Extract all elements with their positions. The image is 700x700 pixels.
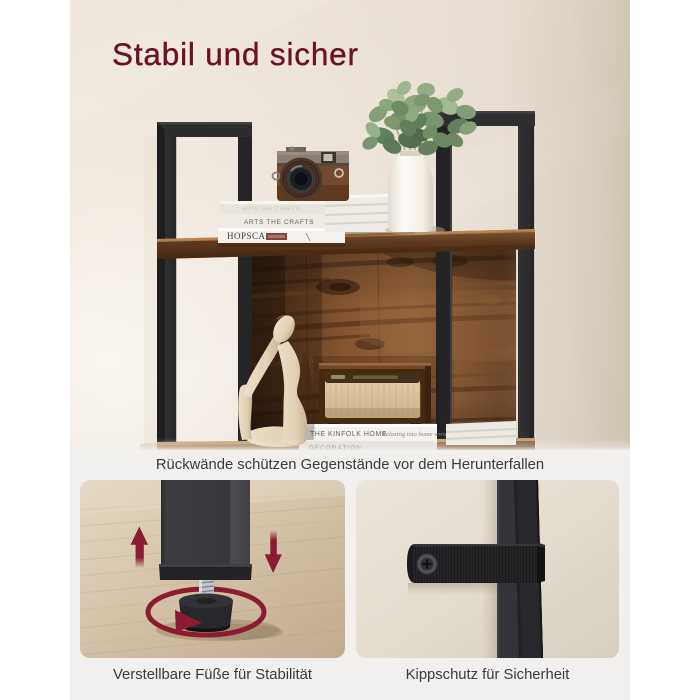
- svg-text:Relaxing into home www: Relaxing into home www: [381, 431, 448, 438]
- svg-text:ARTS THE CRAFTS: ARTS THE CRAFTS: [242, 207, 300, 213]
- svg-text:HOPSCA: HOPSCA: [227, 231, 266, 241]
- svg-text:THE KINFOLK HOME: THE KINFOLK HOME: [310, 431, 387, 438]
- svg-text:ARTS THE CRAFTS: ARTS THE CRAFTS: [244, 219, 314, 226]
